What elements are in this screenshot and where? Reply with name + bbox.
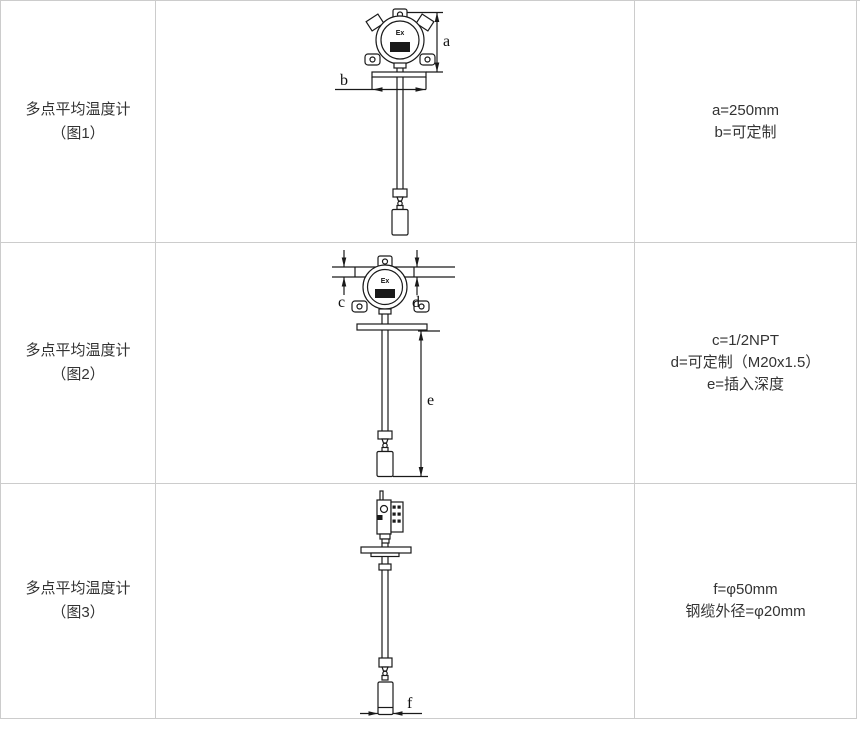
- dimensions-cell-1: a=250mm b=可定制: [635, 1, 857, 243]
- tube-coupling: [379, 564, 391, 570]
- dimensions-cell-3: f=φ50mm 钢缆外径=φ20mm: [635, 484, 857, 719]
- flange: [372, 72, 426, 90]
- table-row-1: 多点平均温度计 （图1）: [1, 1, 860, 243]
- dim-label-a: a: [443, 33, 450, 50]
- terminal-dot: [398, 520, 401, 523]
- dim-line: c=1/2NPT: [712, 330, 779, 352]
- product-label-cell-2: 多点平均温度计 （图2）: [1, 243, 156, 484]
- stem-tube: [379, 543, 391, 659]
- probe-weight: [377, 452, 393, 477]
- cable-connector-and-probe: [392, 189, 408, 235]
- display-window: [390, 42, 410, 52]
- dim-label-f: f: [407, 695, 413, 712]
- product-title: 多点平均温度计: [25, 98, 130, 122]
- figure-cell-1: Ex b: [156, 1, 635, 243]
- head-neck: [394, 63, 406, 68]
- spec-table: 多点平均温度计 （图1）: [0, 0, 860, 719]
- dim-line: 钢缆外径=φ20mm: [685, 601, 805, 623]
- dimension-d: d: [412, 250, 420, 311]
- terminal-dot: [398, 506, 401, 509]
- dim-label-e: e: [427, 392, 434, 409]
- product-title: 多点平均温度计: [25, 577, 130, 601]
- terminal-dot: [393, 506, 396, 509]
- dim-label-b: b: [340, 72, 348, 89]
- terminal-dot: [393, 513, 396, 516]
- ex-marking: Ex: [381, 278, 390, 285]
- product-label-cell-1: 多点平均温度计 （图1）: [1, 1, 156, 243]
- probe-weight: [392, 210, 408, 236]
- head-neck: [380, 534, 390, 539]
- dim-line: d=可定制（M20x1.5）: [671, 352, 821, 374]
- temperature-sensor-figure-3-diagram: f: [156, 484, 635, 719]
- spec-page: 多点平均温度计 （图1）: [0, 0, 860, 730]
- stem-tube: [397, 63, 403, 189]
- head-neck: [379, 309, 391, 314]
- dim-label-c: c: [338, 294, 345, 311]
- flange: [361, 547, 411, 557]
- dimension-c: c: [338, 250, 346, 311]
- cable-connector-and-probe: [378, 658, 393, 715]
- product-label-cell-3: 多点平均温度计 （图3）: [1, 484, 156, 719]
- dim-line: e=插入深度: [707, 374, 784, 396]
- figure-cell-3: f: [156, 484, 635, 719]
- flange: [357, 324, 440, 331]
- table-row-3: 多点平均温度计 （图3）: [1, 484, 860, 719]
- display-window: [375, 289, 395, 298]
- figure-cell-2: Ex c: [156, 243, 635, 484]
- table-row-2: 多点平均温度计 （图2）: [1, 243, 860, 484]
- dim-label-d: d: [412, 294, 420, 311]
- dim-line: a=250mm: [712, 100, 779, 122]
- terminal-dot: [393, 520, 396, 523]
- temperature-sensor-figure-2-diagram: Ex c: [156, 243, 635, 484]
- dim-line: b=可定制: [714, 122, 776, 144]
- product-title: 多点平均温度计: [25, 339, 130, 363]
- terminal-dot: [398, 513, 401, 516]
- terminal-head: [377, 491, 403, 543]
- probe-weight: [378, 682, 393, 715]
- transmitter-head: Ex: [365, 9, 435, 68]
- dimensions-cell-2: c=1/2NPT d=可定制（M20x1.5） e=插入深度: [635, 243, 857, 484]
- figure-ref: （图2）: [51, 363, 104, 387]
- temperature-sensor-figure-1-diagram: Ex b: [156, 1, 635, 243]
- dim-line: f=φ50mm: [713, 579, 777, 601]
- dimension-e: e: [419, 331, 434, 477]
- figure-ref: （图3）: [51, 601, 104, 625]
- figure-ref: （图1）: [51, 122, 104, 146]
- ex-marking: Ex: [396, 30, 405, 37]
